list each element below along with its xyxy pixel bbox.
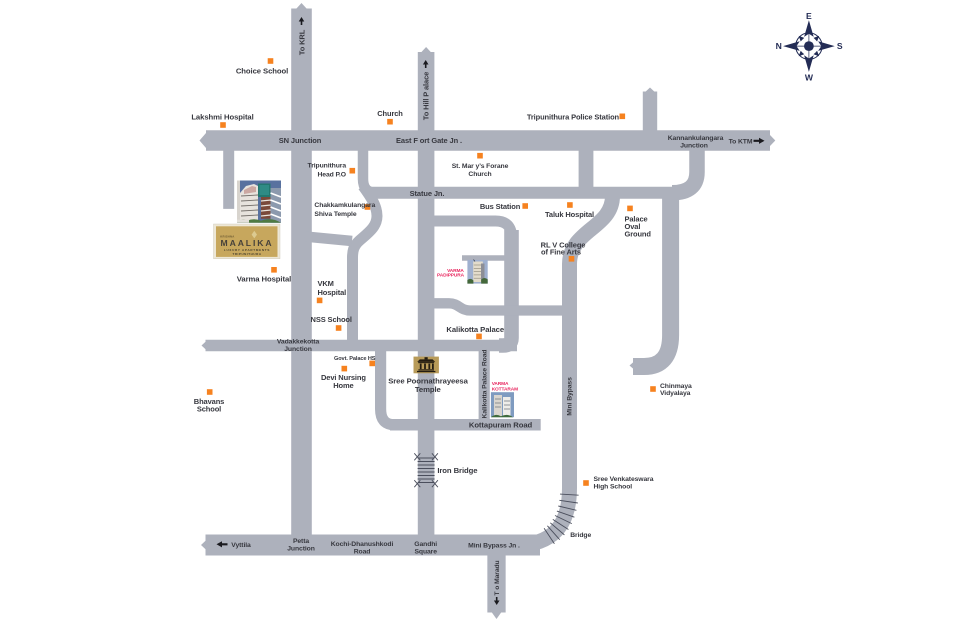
svg-text:Kalikotta Palace: Kalikotta Palace: [446, 325, 504, 334]
svg-text:W: W: [805, 73, 814, 83]
svg-text:Choice School: Choice School: [236, 67, 288, 76]
svg-text:Kochi-Dhanushkodi: Kochi-Dhanushkodi: [331, 541, 394, 548]
svg-text:To KTM: To KTM: [729, 138, 753, 145]
svg-text:E: E: [806, 11, 812, 21]
svg-text:Home: Home: [333, 381, 353, 390]
svg-text:Gandhi: Gandhi: [414, 541, 437, 548]
svg-text:Church: Church: [377, 109, 403, 118]
svg-text:Junction: Junction: [284, 346, 312, 353]
svg-text:Taluk Hospital: Taluk Hospital: [545, 210, 594, 219]
svg-text:Bus Station: Bus Station: [480, 202, 521, 211]
svg-text:T o Maradu: T o Maradu: [494, 560, 501, 595]
svg-text:Head P.O: Head P.O: [317, 171, 346, 178]
svg-text:Kalikotta Palace Road: Kalikotta Palace Road: [482, 350, 489, 419]
svg-text:Sree Venkateswara: Sree Venkateswara: [594, 476, 654, 483]
svg-text:NSS School: NSS School: [311, 315, 352, 324]
svg-text:East F ort Gate Jn .: East F ort Gate Jn .: [396, 136, 462, 145]
svg-text:Varma Hospital: Varma Hospital: [237, 275, 291, 284]
svg-text:Temple: Temple: [415, 385, 442, 394]
svg-text:School: School: [197, 404, 221, 413]
svg-text:Junction: Junction: [680, 143, 708, 150]
svg-text:To Hill P alace: To Hill P alace: [422, 72, 431, 120]
svg-text:Statue Jn.: Statue Jn.: [410, 189, 445, 198]
svg-text:Lakshmi Hospital: Lakshmi Hospital: [191, 113, 253, 122]
svg-text:TRIPUNITHURA: TRIPUNITHURA: [232, 252, 261, 256]
svg-text:Hospital: Hospital: [318, 288, 347, 297]
svg-text:To KRL: To KRL: [297, 29, 306, 55]
svg-text:Tripunithura Police Station: Tripunithura Police Station: [527, 112, 620, 121]
svg-text:Mini Bypass Jn .: Mini Bypass Jn .: [468, 543, 520, 550]
svg-text:KOTTARAM: KOTTARAM: [492, 387, 518, 393]
svg-text:Tripunithura: Tripunithura: [308, 163, 347, 170]
svg-text:MAALIKA: MAALIKA: [221, 238, 274, 248]
svg-text:Iron Bridge: Iron Bridge: [437, 466, 478, 475]
svg-text:of Fine Arts: of Fine Arts: [541, 248, 581, 257]
svg-text:St. Mar y’s Forane: St. Mar y’s Forane: [452, 163, 509, 170]
svg-text:Church: Church: [468, 171, 491, 178]
svg-text:Chinmaya: Chinmaya: [660, 383, 692, 390]
svg-text:VKM: VKM: [318, 279, 334, 288]
svg-text:N: N: [776, 41, 782, 51]
svg-text:S: S: [837, 41, 843, 51]
svg-text:Mini Bypass: Mini Bypass: [567, 377, 574, 416]
svg-text:SN Junction: SN Junction: [279, 136, 322, 145]
svg-text:Road: Road: [354, 549, 371, 556]
svg-text:Chakkamkulangara: Chakkamkulangara: [314, 202, 375, 209]
svg-text:Kannankulangara: Kannankulangara: [668, 135, 724, 142]
svg-text:Shiva Temple: Shiva Temple: [314, 211, 356, 218]
svg-text:High School: High School: [594, 483, 633, 490]
svg-text:Vidyalaya: Vidyalaya: [660, 390, 691, 397]
svg-text:Bridge: Bridge: [570, 532, 591, 539]
svg-text:PADIPPURA: PADIPPURA: [437, 273, 465, 279]
svg-text:Kottapuram Road: Kottapuram Road: [469, 420, 533, 429]
svg-text:VARMA: VARMA: [492, 381, 509, 387]
svg-text:Petta: Petta: [293, 538, 309, 545]
svg-text:Square: Square: [414, 549, 437, 556]
svg-text:Govt. Palace HS: Govt. Palace HS: [334, 356, 376, 362]
svg-text:Vyttila: Vyttila: [231, 542, 251, 549]
svg-text:Vadakkekotta: Vadakkekotta: [277, 338, 320, 345]
svg-text:Junction: Junction: [287, 546, 315, 553]
svg-text:Ground: Ground: [625, 229, 652, 238]
